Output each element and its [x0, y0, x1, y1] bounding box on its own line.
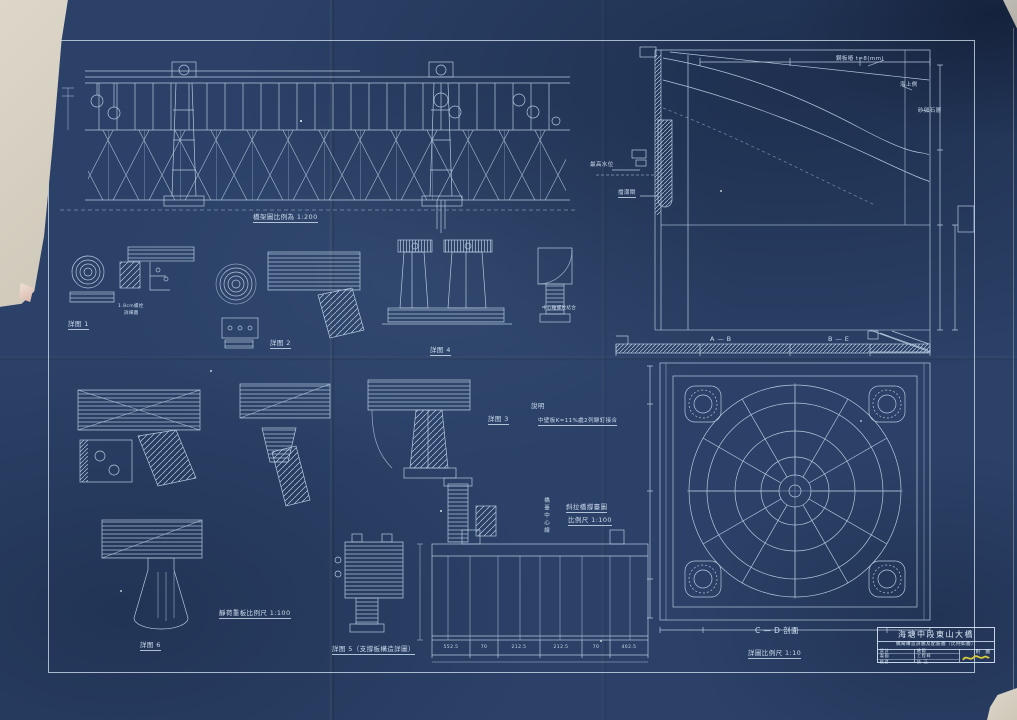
detail-3-label: 詳图 3	[488, 416, 509, 425]
dim-value: 402.5	[616, 646, 642, 651]
sand-layer-label: 砂卵石層	[918, 108, 942, 114]
support-caption-line2: 比例尺 1:100	[568, 517, 612, 526]
truss-caption: 橋架圖比例為 1:200	[253, 214, 318, 223]
dim-value: 212.5	[548, 646, 574, 651]
detail-plate	[268, 252, 364, 338]
laminated-plate-b	[240, 384, 330, 506]
tb-row-check: 校對	[878, 660, 914, 664]
support-caption-line1: 斜拉橋撐臺圖	[566, 504, 607, 513]
detail-clamp	[120, 247, 194, 290]
detail-6-funnel	[134, 558, 188, 629]
detail-3-leg	[368, 380, 470, 478]
title-block-table: 設計 製圖 校對 繪圖 工程師 技 正 附 圖	[878, 649, 994, 662]
blueprint-sheet: 橋架圖比例為 1:200 1.8cm螺栓 詳細圖 詳图 1 詳图 2 詳图 4 …	[0, 0, 1017, 720]
paper-edge-highlight	[1013, 28, 1014, 692]
detail-2-label: 詳图 2	[270, 340, 291, 349]
load-caption: 靜荷重板比例尺 1:100	[219, 610, 291, 619]
sea-side-label: 海上側	[900, 82, 918, 88]
laminated-plate-c	[102, 520, 202, 558]
detail-2-coil	[216, 264, 258, 348]
ab-strip	[616, 330, 930, 356]
section-ab-label: A — B	[710, 336, 732, 343]
gate-section	[596, 47, 958, 330]
steel-sheet-label: 鋼板樁 t=8(mm)	[836, 56, 884, 62]
section-be-label: B — E	[828, 336, 849, 343]
axis-note: 中心軸螺栓結合	[542, 307, 576, 312]
dim-value: 70	[471, 646, 497, 651]
bolt-note-line2: 詳細圖	[124, 312, 139, 317]
centerline-label: 橋臺中心線	[543, 497, 549, 535]
detail-1-label: 詳图 1	[68, 321, 89, 330]
title-block: 海塘中段東山大橋 橋閘構造詳圖及配筋圖（比例如圖） 設計 製圖 校對 繪圖 工程…	[877, 627, 995, 663]
max-water-label: 最高水位	[590, 162, 614, 168]
cd-scale-label: 詳圖比例尺 1:10	[748, 650, 801, 659]
note-body: 中壁板K=11%處2列鉚釘接合	[538, 418, 617, 426]
dust-specks	[300, 120, 302, 122]
bolted-plate	[80, 430, 196, 486]
truss-elevation	[60, 62, 575, 233]
detail-4-label: 詳图 4	[430, 347, 451, 356]
detail-5-label: 詳图 5（支撐板構造詳圖）	[332, 646, 415, 655]
detail-5-bracket	[335, 534, 403, 632]
detail-6-label: 詳图 6	[140, 642, 161, 651]
cd-section-label: C — D 剖面	[755, 627, 799, 635]
dim-value: 552.5	[438, 646, 464, 651]
dim-value: 70	[583, 646, 609, 651]
detail-1-coil	[70, 256, 114, 302]
bolt-note-line1: 1.8cm螺栓	[118, 305, 144, 310]
note-title: 說明	[531, 403, 545, 410]
dim-value: 212.5	[506, 646, 532, 651]
circular-plan	[647, 206, 974, 633]
tb-row-chief: 技 正	[915, 660, 959, 664]
wall-elevation	[417, 530, 648, 662]
tide-gate-label: 擋潮閘	[618, 190, 636, 198]
strut-pieces	[444, 478, 496, 542]
blueprint-linework	[0, 0, 1017, 720]
detail-4-piers	[382, 240, 512, 324]
signature-mark	[962, 653, 990, 663]
drawing-title: 海塘中段東山大橋	[878, 628, 994, 642]
laminated-plate-a	[78, 390, 200, 430]
